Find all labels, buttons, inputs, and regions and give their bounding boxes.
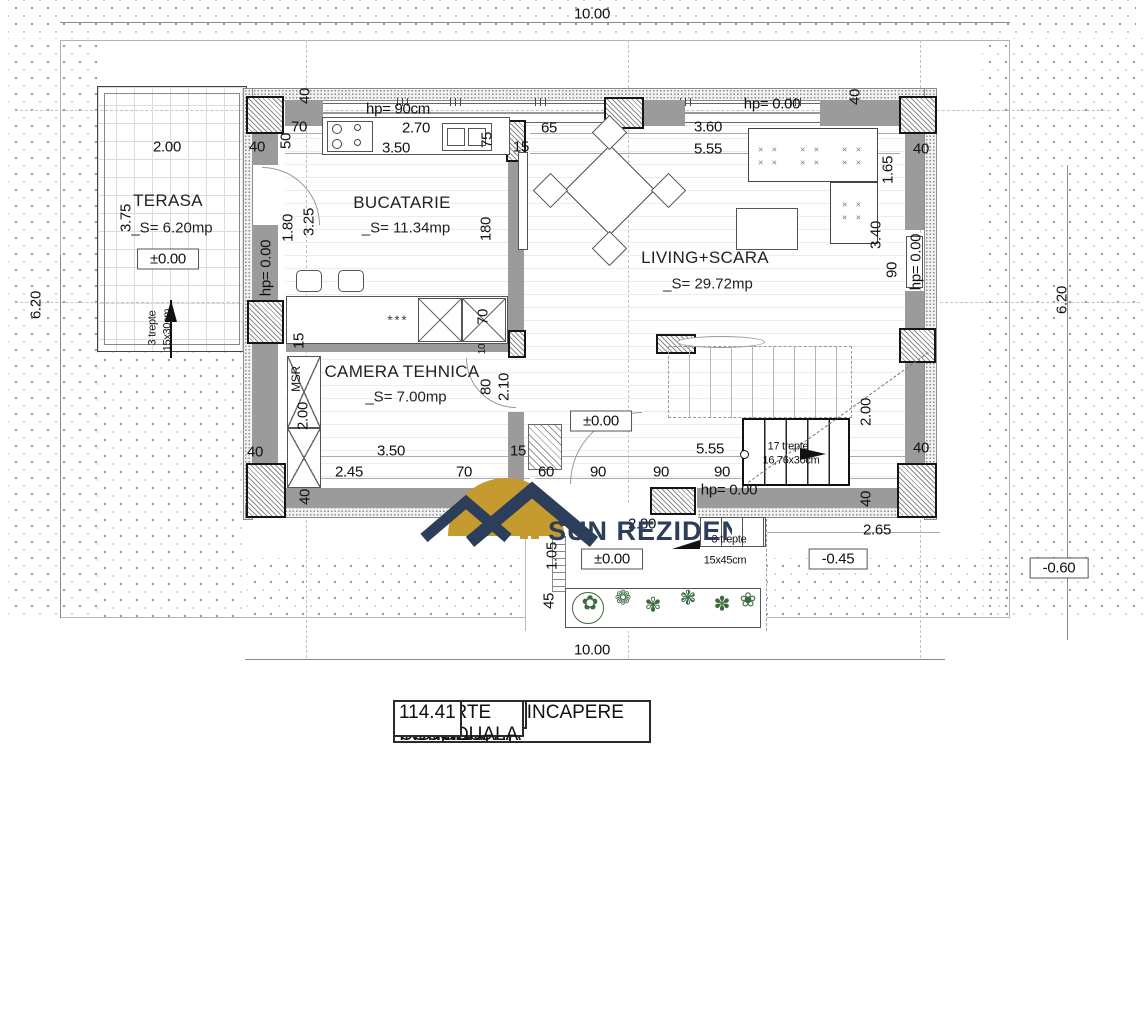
dimension-label: 2.65 xyxy=(863,523,891,538)
dimension-label: 70 xyxy=(291,120,307,135)
dim-total-right: 6.20 xyxy=(1055,286,1070,314)
dimension-label: 2.00 xyxy=(153,140,181,155)
dimension-label: 5.55 xyxy=(694,142,722,157)
dimension-label: 1.80 xyxy=(281,214,296,242)
level-interior: ±0.00 xyxy=(570,411,632,432)
logo-text: SUN REZIDENTIAL xyxy=(548,516,732,546)
exterior-steps-size: 15x45cm xyxy=(704,556,747,567)
dimension-label: 3.50 xyxy=(382,141,410,156)
dimension-label: 40 xyxy=(848,89,863,105)
parapet-height-kitchen: hp= 90cm xyxy=(366,102,430,117)
dimension-label: × × xyxy=(842,159,864,168)
dimension-label: 40 xyxy=(298,489,313,505)
kitchen-symbol: *** xyxy=(387,314,408,327)
dimension-label: × × xyxy=(842,146,864,155)
dimension-label: 3.50 xyxy=(377,444,405,459)
dimension-label: 40 xyxy=(298,88,313,104)
dimension-label: 3.25 xyxy=(302,208,317,236)
dimension-label: × × xyxy=(758,146,780,155)
dimension-label: 180 xyxy=(479,217,494,241)
dimension-label: 90 xyxy=(885,262,900,278)
msr-label: MSR xyxy=(290,366,302,392)
dimension-label: 40 xyxy=(859,491,874,507)
dimension-label: 1.65 xyxy=(881,156,896,184)
dimension-label: 10 xyxy=(478,344,488,355)
terasa-steps-size: 15x30cm xyxy=(163,309,174,352)
dimension-label: 45 xyxy=(542,593,557,609)
dimension-label: 40 xyxy=(249,140,265,155)
dim-total-bottom: 10.00 xyxy=(574,643,610,658)
dimension-label: 75 xyxy=(480,132,495,148)
stair-steps-size: 16,76x30cm xyxy=(763,456,820,467)
dimension-label: 2.00 xyxy=(296,402,311,430)
dimension-label: 40 xyxy=(913,142,929,157)
terasa-steps-note: 3 trepte xyxy=(148,311,159,346)
dimension-label: 80 xyxy=(479,379,494,395)
dimension-label: × × xyxy=(842,214,864,223)
sun-rezidential-logo: SUN REZIDENTIAL xyxy=(420,474,732,550)
dimension-label: 3.60 xyxy=(694,120,722,135)
dimension-label: 2.10 xyxy=(497,373,512,401)
dimension-label: × × xyxy=(800,159,822,168)
dimension-label: × × xyxy=(842,201,864,210)
level-minus-045: -0.45 xyxy=(809,549,868,570)
dimension-label: 15 xyxy=(510,444,526,459)
dimension-label: hp= 0.00 xyxy=(259,240,274,296)
dimension-label: 40 xyxy=(247,445,263,460)
dimension-label: 65 xyxy=(541,121,557,136)
dimension-label: × × xyxy=(758,159,780,168)
dimension-label: 40 xyxy=(913,441,929,456)
floor-plan-canvas: ✿❁✾❃✽❀ TERASA _S= 6.20mp ±0.00 BUCATARIE… xyxy=(0,0,1144,1024)
stair-steps-note: 17 trepte xyxy=(768,442,809,453)
parapet-height-living: hp= 0.00 xyxy=(744,97,800,112)
dimension-label: 2.00 xyxy=(859,398,874,426)
dimension-label: 15 xyxy=(292,333,307,349)
table-cell: 114.41 xyxy=(393,700,462,737)
dimension-label: 2.70 xyxy=(402,121,430,136)
dim-total-left: 6.20 xyxy=(29,291,44,319)
parapet-height-niche: hp= 0.00 xyxy=(909,234,924,290)
dimension-label: 70 xyxy=(476,309,491,325)
dimension-label: 2.45 xyxy=(335,465,363,480)
dimension-label: 15 xyxy=(513,140,529,155)
level-minus-060: -0.60 xyxy=(1030,558,1089,579)
dimension-label: 3.40 xyxy=(869,221,884,249)
dimension-label: 5.55 xyxy=(696,442,724,457)
dimension-label: 3.75 xyxy=(119,204,134,232)
dim-total-top: 10.00 xyxy=(574,7,610,22)
level-walkway: ±0.00 xyxy=(581,549,643,570)
dimension-label: × × xyxy=(800,146,822,155)
